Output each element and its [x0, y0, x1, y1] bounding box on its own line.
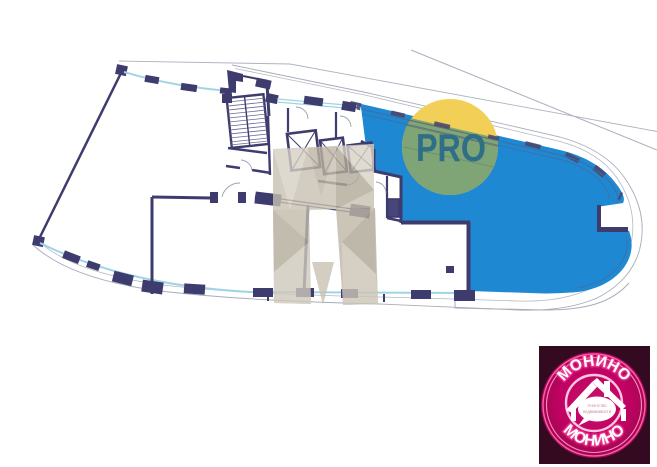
svg-text:PRO: PRO [416, 127, 486, 170]
svg-text:Агентство: Агентство [587, 403, 607, 408]
svg-text:недвижимости: недвижимости [583, 409, 612, 414]
